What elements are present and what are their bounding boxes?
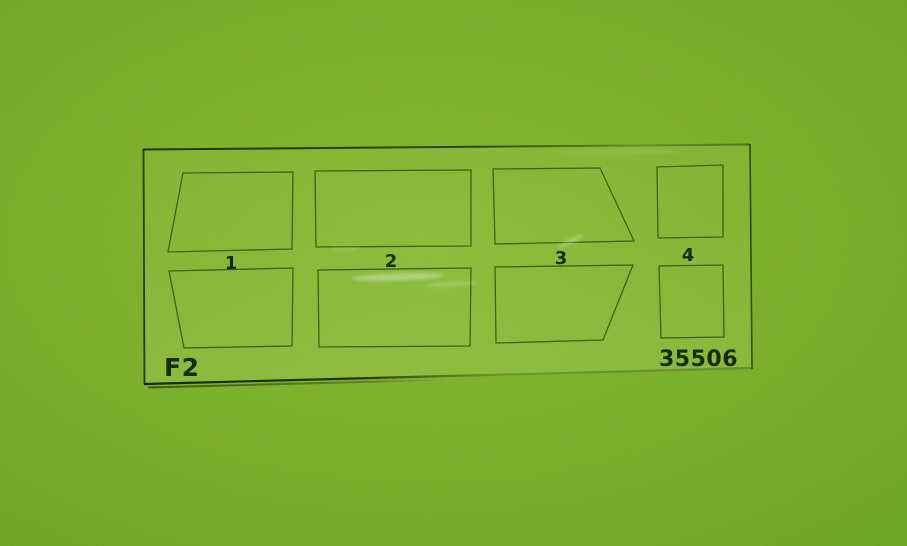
photo-grain — [0, 0, 907, 546]
scene-svg: 1 2 3 4 F2 35506 — [0, 0, 907, 546]
photo-background: 1 2 3 4 F2 35506 — [0, 0, 907, 546]
